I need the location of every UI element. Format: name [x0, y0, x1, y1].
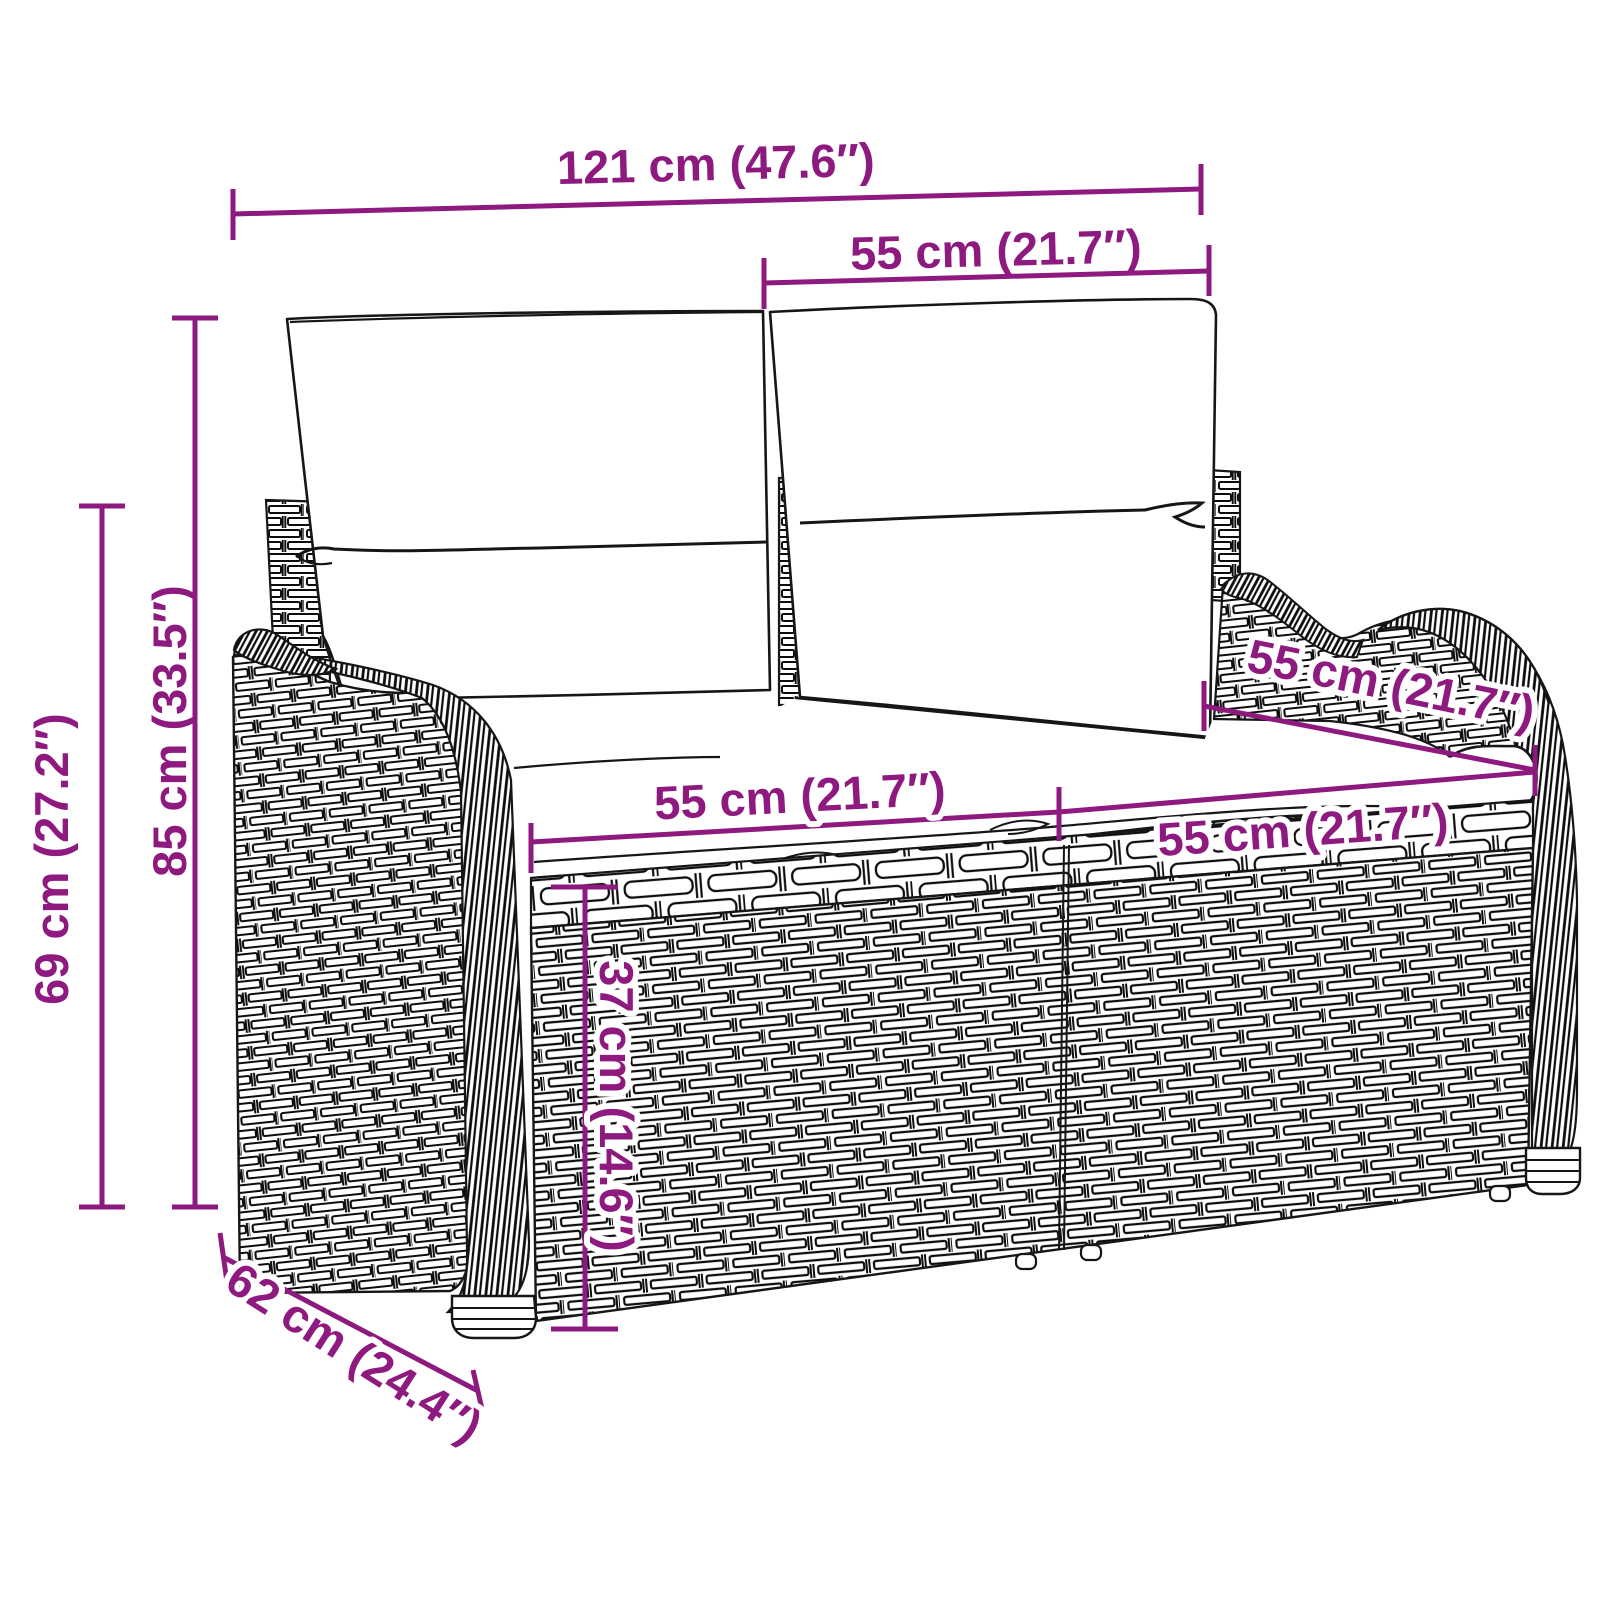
svg-text:121 cm (47.6″): 121 cm (47.6″): [556, 133, 875, 194]
svg-text:55 cm (21.7″): 55 cm (21.7″): [849, 219, 1142, 280]
svg-text:69 cm (27.2″): 69 cm (27.2″): [25, 713, 78, 1005]
svg-text:85 cm (33.5″): 85 cm (33.5″): [143, 585, 196, 877]
svg-text:37 cm (14.6″): 37 cm (14.6″): [590, 960, 643, 1252]
